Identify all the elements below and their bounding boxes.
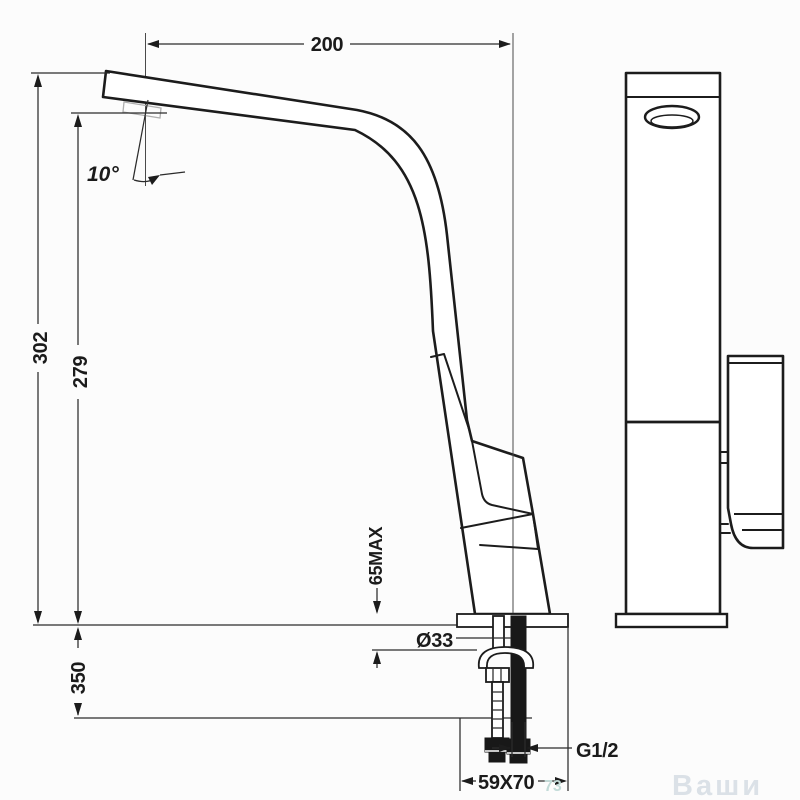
watermark-text: Ваши bbox=[672, 770, 763, 800]
angle-arrow-tail bbox=[160, 172, 185, 175]
front-view bbox=[616, 73, 783, 627]
dim-label-total-height: 302 bbox=[30, 332, 52, 365]
mounting-stud bbox=[493, 616, 504, 650]
dim-label-angle: 10° bbox=[87, 163, 119, 186]
dim-label-base-size: 59X70 bbox=[478, 772, 535, 794]
dimension-spout-height: 279 bbox=[70, 113, 167, 624]
hose-end-nut bbox=[507, 739, 530, 754]
angle-arrow bbox=[148, 175, 160, 185]
stud-end-nut-tip bbox=[489, 752, 505, 762]
stud-hex-nut bbox=[486, 668, 509, 682]
mounting-clamp-bracket bbox=[479, 647, 533, 668]
watermark-mark: 73 bbox=[544, 778, 562, 795]
front-column bbox=[626, 73, 720, 614]
dimension-spout-reach: 200 bbox=[147, 34, 511, 56]
dimension-below-counter: 350 bbox=[68, 627, 90, 716]
dimension-total-height: 302 bbox=[30, 73, 110, 624]
faucet-dimensional-drawing: 10° 200 302 279 bbox=[0, 0, 800, 800]
stud-end-nut bbox=[485, 738, 509, 752]
dim-label-spout-reach: 200 bbox=[311, 34, 344, 56]
front-base-plate bbox=[616, 614, 727, 627]
supply-hose bbox=[511, 616, 526, 740]
dim-label-spout-height: 279 bbox=[70, 356, 92, 389]
front-handle bbox=[728, 356, 783, 548]
side-view: 10° 200 302 279 bbox=[30, 33, 618, 794]
faucet-body-outline bbox=[103, 71, 550, 614]
dim-label-below-counter: 350 bbox=[68, 662, 90, 695]
dim-label-thread: G1/2 bbox=[576, 740, 618, 762]
technical-drawing-page: 10° 200 302 279 bbox=[0, 0, 800, 800]
dim-label-hole-diameter: Ø33 bbox=[416, 630, 453, 652]
dim-label-counter-max: 65MAX bbox=[366, 526, 386, 585]
